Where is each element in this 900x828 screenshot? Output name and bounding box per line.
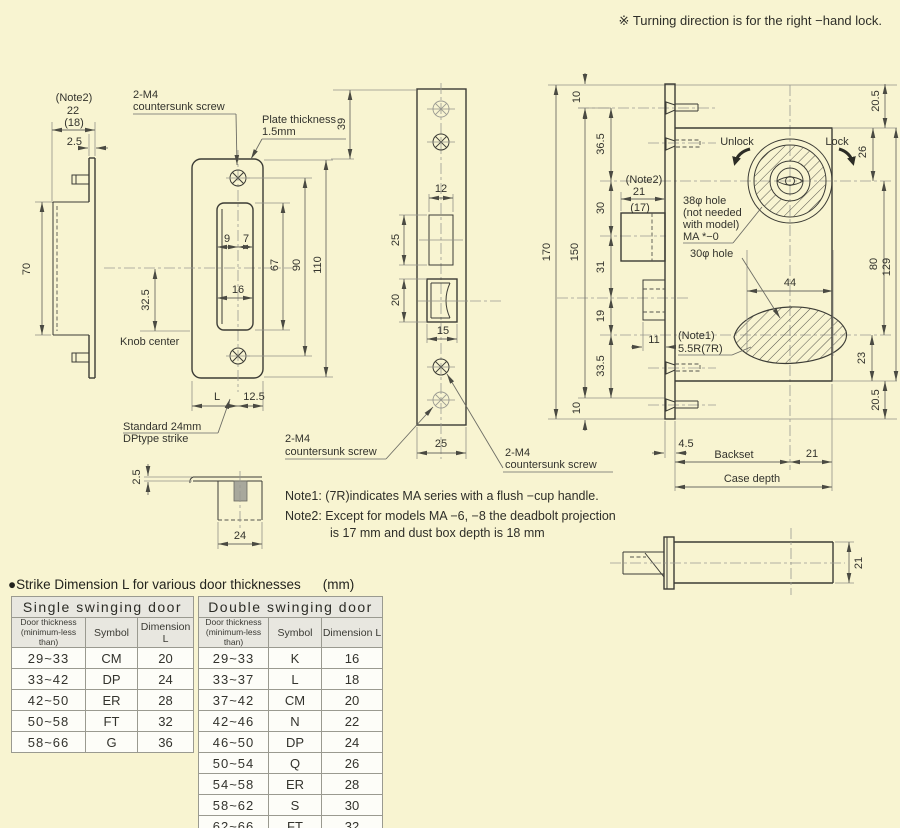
strike-table-title: ●Strike Dimension L for various door thi… <box>8 577 354 592</box>
label-radius: 5.5R(7R) <box>678 343 723 355</box>
dim-note2-ref: (Note2) <box>56 92 93 104</box>
unlock-arrow-icon <box>735 149 750 163</box>
label-lock: Lock <box>825 136 849 148</box>
single-swinging-door-table: Single swinging door Door thickness(mini… <box>11 596 194 753</box>
strike-table-title-text: ●Strike Dimension L for various door thi… <box>8 577 301 592</box>
dim-23: 23 <box>856 352 868 364</box>
dim-39: 39 <box>336 118 348 130</box>
label-standard-strike-1: Standard 24mm <box>123 421 201 433</box>
label-knob-center: Knob center <box>120 336 180 348</box>
label-case-depth: Case depth <box>724 473 780 485</box>
label-screw-left-1: 2-M4 <box>285 433 310 445</box>
dim-19: 19 <box>595 310 607 322</box>
table-row: 50~58FT32 <box>12 711 194 732</box>
table-title: Double swinging door <box>199 597 383 618</box>
col-header-symbol: Symbol <box>269 618 322 648</box>
dim-7: 7 <box>243 233 249 245</box>
dim-25-latch: 25 <box>390 234 402 246</box>
dim-18: (18) <box>64 117 84 129</box>
double-swinging-door-table: Double swinging door Door thickness(mini… <box>198 596 383 828</box>
table-row: 29~33CM20 <box>12 648 194 669</box>
table-row: 50~54Q26 <box>199 753 383 774</box>
label-plate-thickness-1: Plate thickness <box>262 114 336 126</box>
col-header-thickness: Door thickness(minimum-less than) <box>12 618 86 648</box>
table-row: 58~62S30 <box>199 795 383 816</box>
label-unlock: Unlock <box>720 136 754 148</box>
col-header-thickness: Door thickness(minimum-less than) <box>199 618 269 648</box>
hub-hole-shape <box>734 307 847 364</box>
label-30-hole: 30φ hole <box>690 248 733 260</box>
table-row: 29~33K16 <box>199 648 383 669</box>
case-side-view: 21 <box>610 528 865 595</box>
dim-150: 150 <box>569 243 581 261</box>
dim-L: L <box>214 391 220 403</box>
dim-110: 110 <box>312 256 324 274</box>
dim-17: (17) <box>630 202 650 214</box>
dim-9: 9 <box>224 233 230 245</box>
strike-table-unit: (mm) <box>323 577 354 592</box>
table-row: 46~50DP24 <box>199 732 383 753</box>
table-row: 42~46N22 <box>199 711 383 732</box>
dim-note2-ref-body: (Note2) <box>626 174 663 186</box>
lock-arrow-icon <box>839 149 853 163</box>
dim-20-5-bottom: 20.5 <box>870 389 882 410</box>
dim-10-bottom: 10 <box>571 402 583 414</box>
table-title: Single swinging door <box>12 597 194 618</box>
dust-box-view: 2.5 24 <box>131 464 262 549</box>
label-screw-top-2: countersunk screw <box>133 101 225 113</box>
note2-line1: Note2: Except for models MA −6, −8 the d… <box>285 509 616 523</box>
note1-text: Note1: (7R)indicates MA series with a fl… <box>285 489 599 503</box>
dim-12: 12 <box>435 183 447 195</box>
dim-44: 44 <box>784 277 796 289</box>
dim-25-width: 25 <box>435 438 447 450</box>
dim-case-21: 21 <box>853 557 865 569</box>
dim-4-5: 4.5 <box>678 438 693 450</box>
label-38-hole-3: with model) <box>682 219 739 231</box>
table-row: 58~66G36 <box>12 732 194 753</box>
dim-33-5: 33.5 <box>595 355 607 376</box>
faceplate-view: 39 12 25 20 15 25 2-M4 countersu <box>285 83 613 472</box>
dim-67: 67 <box>269 259 281 271</box>
table-row: 33~37L18 <box>199 669 383 690</box>
label-backset: Backset <box>714 449 753 461</box>
label-screw-right-2: countersunk screw <box>505 459 597 471</box>
table-row: 42~50ER28 <box>12 690 194 711</box>
table-row: 62~66FT32 <box>199 816 383 828</box>
dim-80: 80 <box>868 258 880 270</box>
dim-box-2-5: 2.5 <box>131 469 143 484</box>
label-38-hole-4: MA *−0 <box>683 231 719 243</box>
dim-10-top: 10 <box>571 91 583 103</box>
label-screw-top-1: 2-M4 <box>133 89 158 101</box>
dim-70: 70 <box>21 263 33 275</box>
dim-15: 15 <box>437 325 449 337</box>
lock-body-view: Unlock Lock 44 170 150 10 10 36.5 30 31 … <box>541 73 897 491</box>
lock-technical-drawing-page: (Note2) 22 (18) 2.5 70 32.5 Knob center <box>0 0 900 828</box>
dim-22: 22 <box>67 105 79 117</box>
dim-30: 30 <box>595 202 607 214</box>
dim-2-5: 2.5 <box>67 136 82 148</box>
dim-12-5: 12.5 <box>243 391 264 403</box>
dim-21-case: 21 <box>806 448 818 460</box>
dim-21-deadbolt: 21 <box>633 186 645 198</box>
col-header-dimension: Dimension L <box>138 618 194 648</box>
label-standard-strike-2: DPtype strike <box>123 433 188 445</box>
label-plate-thickness-2: 1.5mm <box>262 126 296 138</box>
dim-20-5-top: 20.5 <box>870 90 882 111</box>
table-row: 37~42CM20 <box>199 690 383 711</box>
table-row: 54~58ER28 <box>199 774 383 795</box>
dim-20: 20 <box>390 294 402 306</box>
strike-side-view: (Note2) 22 (18) 2.5 70 32.5 Knob center <box>21 92 190 378</box>
table-row: 33~42DP24 <box>12 669 194 690</box>
dim-26: 26 <box>857 146 869 158</box>
label-screw-right-1: 2-M4 <box>505 447 530 459</box>
dim-36-5: 36.5 <box>595 133 607 154</box>
dim-129: 129 <box>881 258 893 276</box>
dim-170: 170 <box>541 243 553 261</box>
dim-11: 11 <box>648 334 659 346</box>
label-38-hole-2: (not needed <box>683 207 742 219</box>
note2-line2: is 17 mm and dust box depth is 18 mm <box>330 526 545 540</box>
dim-16: 16 <box>232 284 244 296</box>
label-screw-left-2: countersunk screw <box>285 446 377 458</box>
col-header-dimension: Dimension L <box>322 618 383 648</box>
label-note1-ref: (Note1) <box>678 330 715 342</box>
dim-31: 31 <box>595 261 607 273</box>
label-38-hole-1: 38φ hole <box>683 195 726 207</box>
dim-90: 90 <box>291 259 303 271</box>
dim-box-24: 24 <box>234 530 246 542</box>
strike-front-view: 9 7 16 67 90 110 L 12.5 2-M4 countersunk… <box>104 89 346 445</box>
turning-direction-note: ※ Turning direction is for the right −ha… <box>619 13 882 29</box>
dim-32-5: 32.5 <box>140 289 152 310</box>
col-header-symbol: Symbol <box>86 618 138 648</box>
